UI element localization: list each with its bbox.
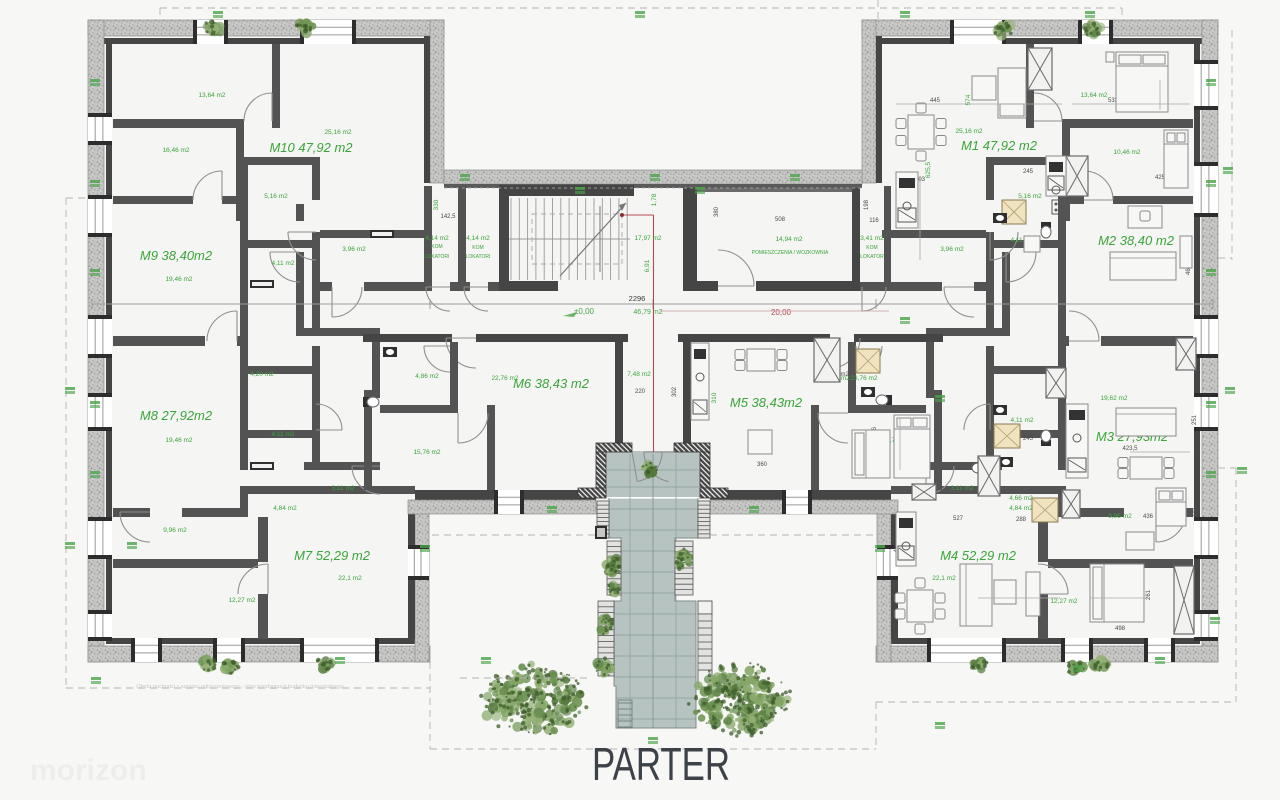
svg-text:15,76 m2: 15,76 m2: [413, 449, 440, 456]
svg-text:13,64 m2: 13,64 m2: [198, 92, 225, 99]
svg-text:4,84 m2: 4,84 m2: [273, 505, 297, 512]
svg-text:7,48 m2: 7,48 m2: [627, 371, 651, 378]
svg-text:12,27 m2: 12,27 m2: [228, 597, 255, 604]
svg-text:1,78: 1,78: [651, 193, 658, 206]
svg-text:3,96 m2: 3,96 m2: [940, 246, 964, 253]
svg-text:302: 302: [672, 386, 678, 397]
svg-text:4,86 m2: 4,86 m2: [415, 373, 439, 380]
svg-text:M9 38,40m2: M9 38,40m2: [140, 248, 213, 263]
svg-text:POMIESZCZENIA / WOZKOWNIA: POMIESZCZENIA / WOZKOWNIA: [752, 250, 829, 256]
svg-text:M6 38,43 m2: M6 38,43 m2: [513, 376, 590, 391]
svg-text:4,14 m2: 4,14 m2: [425, 235, 449, 242]
svg-text:M7 52,29 m2: M7 52,29 m2: [294, 548, 371, 563]
svg-text:16,46 m2: 16,46 m2: [162, 147, 189, 154]
svg-text:445: 445: [930, 98, 941, 104]
svg-text:245: 245: [1023, 169, 1034, 175]
svg-text:436: 436: [1143, 514, 1154, 520]
svg-text:LOKATOR: LOKATOR: [860, 254, 884, 260]
svg-text:17,97 m2: 17,97 m2: [634, 235, 661, 242]
svg-text:KOM: KOM: [431, 244, 442, 250]
svg-text:morizon: morizon: [30, 754, 147, 787]
svg-text:23,76 m2: 23,76 m2: [850, 375, 877, 382]
svg-text:2296: 2296: [629, 294, 646, 303]
svg-text:M5 38,43m2: M5 38,43m2: [730, 395, 803, 410]
svg-text:±0,00: ±0,00: [574, 307, 595, 316]
svg-text:3,11 m2: 3,11 m2: [331, 485, 354, 492]
svg-text:3,41 m2: 3,41 m2: [860, 235, 884, 242]
svg-text:M2 38,40 m2: M2 38,40 m2: [1098, 233, 1175, 248]
svg-text:25,16 m2: 25,16 m2: [324, 129, 351, 136]
svg-text:22,76 m2: 22,76 m2: [491, 375, 518, 382]
svg-text:4,20 m2: 4,20 m2: [250, 371, 274, 378]
svg-text:3,96 m2: 3,96 m2: [342, 246, 366, 253]
svg-text:3,11 m2: 3,11 m2: [950, 485, 973, 492]
svg-text:380: 380: [714, 206, 720, 217]
svg-text:KOM: KOM: [866, 245, 877, 251]
svg-text:19,46 m2: 19,46 m2: [165, 437, 192, 444]
svg-text:251: 251: [1195, 447, 1201, 458]
svg-text:20,00: 20,00: [771, 308, 792, 317]
svg-text:423,5: 423,5: [1122, 446, 1138, 452]
svg-text:261: 261: [1146, 589, 1152, 600]
svg-text:310: 310: [711, 392, 718, 403]
svg-text:251: 251: [1192, 414, 1198, 425]
svg-text:22,1 m2: 22,1 m2: [338, 575, 362, 582]
svg-text:12,27 m2: 12,27 m2: [1050, 598, 1077, 605]
svg-text:4,66 m2: 4,66 m2: [1009, 495, 1033, 502]
svg-text:Oferta pochodzi z serwisu oglo: Oferta pochodzi z serwisu ogloszeniowego…: [136, 684, 344, 690]
svg-text:M1 47,92 m2: M1 47,92 m2: [961, 138, 1038, 153]
svg-text:253: 253: [1194, 506, 1200, 517]
svg-text:25,16 m2: 25,16 m2: [955, 128, 982, 135]
svg-text:142,5: 142,5: [440, 214, 456, 220]
svg-text:288: 288: [1016, 517, 1027, 523]
svg-text:4,11 m2: 4,11 m2: [271, 260, 294, 267]
svg-text:4,11 m2: 4,11 m2: [1010, 417, 1033, 424]
svg-text:M10 47,92 m2: M10 47,92 m2: [269, 140, 353, 155]
svg-text:13,64 m2: 13,64 m2: [1080, 92, 1107, 99]
svg-text:M8 27,92m2: M8 27,92m2: [140, 408, 213, 423]
svg-text:498: 498: [1115, 626, 1126, 632]
svg-text:116: 116: [869, 218, 879, 224]
svg-text:245: 245: [1023, 436, 1034, 442]
svg-text:4,84 m2: 4,84 m2: [1009, 505, 1033, 512]
svg-text:9,95 m2: 9,95 m2: [1108, 513, 1132, 520]
svg-text:19,62 m2: 19,62 m2: [1100, 395, 1127, 402]
svg-text:4,14 m2: 4,14 m2: [466, 235, 490, 242]
svg-text:910: 910: [684, 412, 690, 423]
svg-text:6,91: 6,91: [644, 259, 651, 272]
svg-text:14,94 m2: 14,94 m2: [775, 236, 802, 243]
svg-text:46,79 m2: 46,79 m2: [633, 309, 662, 316]
svg-text:22,1 m2: 22,1 m2: [932, 575, 956, 582]
svg-text:4,11 m2: 4,11 m2: [271, 431, 294, 438]
svg-text:527: 527: [953, 516, 964, 522]
svg-text:LOKATORI: LOKATORI: [466, 254, 491, 260]
svg-text:19,46 m2: 19,46 m2: [165, 276, 192, 283]
svg-text:M4 52,29 m2: M4 52,29 m2: [940, 548, 1017, 563]
svg-text:LOKATORI: LOKATORI: [425, 254, 450, 260]
svg-text:625,5: 625,5: [925, 161, 932, 178]
svg-text:10,46 m2: 10,46 m2: [1113, 149, 1140, 156]
svg-text:220: 220: [635, 389, 646, 395]
svg-text:545: 545: [765, 336, 776, 342]
svg-text:PARTER: PARTER: [592, 738, 730, 790]
svg-text:508: 508: [775, 217, 786, 223]
svg-text:5,16 m2: 5,16 m2: [1018, 193, 1042, 200]
svg-text:5,16 m2: 5,16 m2: [264, 193, 288, 200]
svg-text:330: 330: [433, 199, 440, 210]
svg-text:198: 198: [864, 199, 870, 210]
svg-text:360: 360: [757, 462, 768, 468]
svg-text:KOM: KOM: [472, 245, 483, 251]
svg-text:9,96 m2: 9,96 m2: [163, 527, 187, 534]
